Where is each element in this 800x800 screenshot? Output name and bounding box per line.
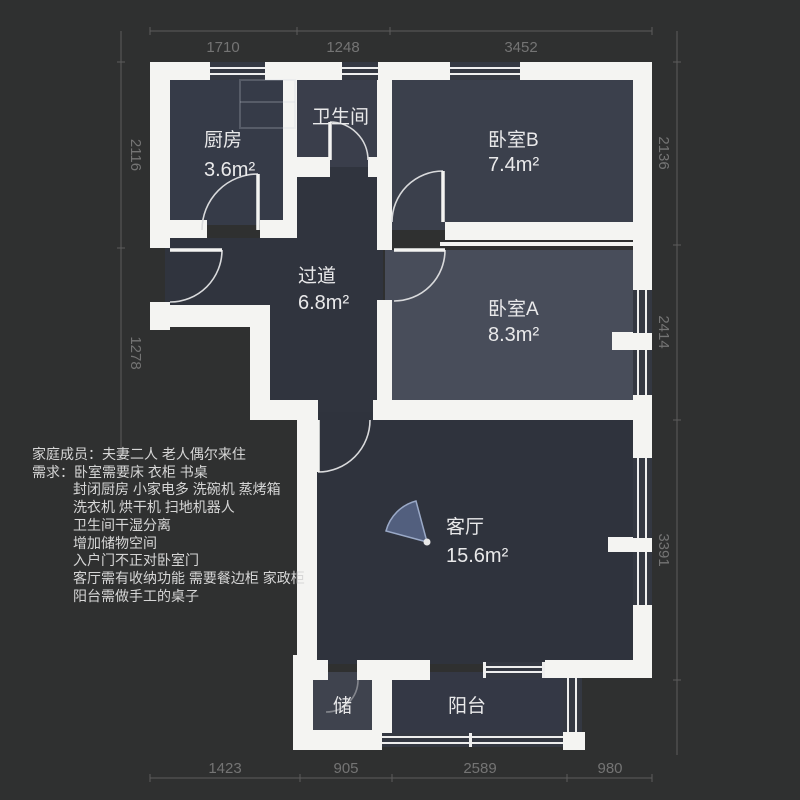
window-line <box>382 736 563 738</box>
room-label-storage: 储 <box>333 695 352 717</box>
dim-label-top-1: 1248 <box>326 39 359 56</box>
window-line <box>567 678 569 732</box>
window-glyph <box>633 290 652 333</box>
window-line <box>645 290 647 333</box>
window-line <box>210 67 265 69</box>
wall <box>357 660 430 680</box>
window-tick <box>542 662 545 678</box>
wall <box>260 220 297 238</box>
dim-label-right-2: 3391 <box>655 533 672 566</box>
window-line <box>645 552 647 605</box>
wall <box>373 400 652 420</box>
window-glyph <box>633 552 652 605</box>
room-label-hallway: 过道 <box>298 265 336 287</box>
window-line <box>450 73 520 75</box>
window-line <box>483 666 545 668</box>
note-line-5: 增加储物空间 <box>32 535 362 553</box>
room-label-bedroom-a: 卧室A <box>488 298 539 320</box>
window-glyph <box>210 62 265 80</box>
note-line-3: 洗衣机 烘干机 扫地机器人 <box>32 499 362 517</box>
room-bedroom-b <box>385 75 638 230</box>
room-area-bedroom-a: 8.3m² <box>488 324 539 346</box>
sliding-door-glyph <box>483 662 545 678</box>
note-line-8: 阳台需做手工的桌子 <box>32 588 362 606</box>
room-label-bedroom-b: 卧室B <box>488 129 539 151</box>
floorplan-drawing: 厨房3.6m²卫生间卧室B7.4m²过道6.8m²卧室A8.3m²客厅15.6m… <box>0 0 800 800</box>
wall <box>445 222 652 240</box>
wall <box>612 332 633 350</box>
window-line <box>637 458 639 538</box>
dim-label-bottom-1: 905 <box>333 760 358 777</box>
wall <box>150 220 207 238</box>
note-line-0: 家庭成员：夫妻二人 老人偶尔来住 <box>32 446 362 464</box>
wall <box>608 537 633 552</box>
dim-label-top-0: 1710 <box>206 39 239 56</box>
window-line <box>637 552 639 605</box>
dim-label-top-2: 3452 <box>504 39 537 56</box>
note-line-6: 入户门不正对卧室门 <box>32 552 362 570</box>
wall <box>633 62 652 290</box>
window-glyph <box>342 62 378 80</box>
window-line <box>382 742 563 744</box>
window-glyph <box>450 62 520 80</box>
window-tick <box>469 733 472 747</box>
window-glyph <box>382 733 563 747</box>
room-label-balcony: 阳台 <box>448 695 486 717</box>
dim-label-left-1: 1278 <box>127 336 144 369</box>
window-line <box>645 350 647 395</box>
room-area-bedroom-b: 7.4m² <box>488 154 539 176</box>
wall <box>563 732 585 750</box>
window-line <box>483 671 545 673</box>
camera-dot-icon <box>424 539 431 546</box>
wall <box>633 333 652 350</box>
window-line <box>645 458 647 538</box>
window-tick <box>483 662 486 678</box>
floorplan-screenshot: 厨房3.6m²卫生间卧室B7.4m²过道6.8m²卧室A8.3m²客厅15.6m… <box>0 0 800 800</box>
note-line-4: 卫生间干湿分离 <box>32 517 362 535</box>
wall <box>283 157 330 177</box>
room-label-kitchen: 厨房 <box>204 129 242 151</box>
note-line-2: 封闭厨房 小家电多 洗碗机 蒸烤箱 <box>32 481 362 499</box>
window-glyph <box>633 350 652 395</box>
note-line-1: 需求：卧室需要床 衣柜 书桌 <box>32 464 362 482</box>
wall <box>377 75 392 250</box>
wall <box>633 538 652 552</box>
room-label-bathroom: 卫生间 <box>312 106 369 128</box>
window-glyph <box>563 678 582 732</box>
room-area-living-room: 15.6m² <box>446 545 509 567</box>
dim-label-bottom-0: 1423 <box>208 760 241 777</box>
window-line <box>575 678 577 732</box>
room-label-living-room: 客厅 <box>446 516 484 538</box>
window-line <box>210 73 265 75</box>
room-area-kitchen: 3.6m² <box>204 159 255 181</box>
window-line <box>637 290 639 333</box>
dim-label-left-0: 2116 <box>127 139 144 171</box>
dim-label-right-0: 2136 <box>655 136 672 169</box>
window-line <box>342 67 378 69</box>
window-line <box>342 73 378 75</box>
room-area-hallway: 6.8m² <box>298 292 349 314</box>
wall <box>633 395 652 458</box>
window-line <box>450 67 520 69</box>
dim-label-bottom-2: 2589 <box>463 760 496 777</box>
dim-label-right-1: 2414 <box>655 315 672 348</box>
wall <box>293 730 382 750</box>
wall <box>440 242 633 246</box>
window-glyph <box>633 458 652 538</box>
requirements-notes: 家庭成员：夫妻二人 老人偶尔来住需求：卧室需要床 衣柜 书桌封闭厨房 小家电多 … <box>32 446 362 605</box>
dim-label-bottom-3: 980 <box>597 760 622 777</box>
room-hallway <box>270 305 383 415</box>
note-line-7: 客厅需有收纳功能 需要餐边柜 家政柜 <box>32 570 362 588</box>
wall <box>545 660 652 678</box>
window-line <box>637 350 639 395</box>
